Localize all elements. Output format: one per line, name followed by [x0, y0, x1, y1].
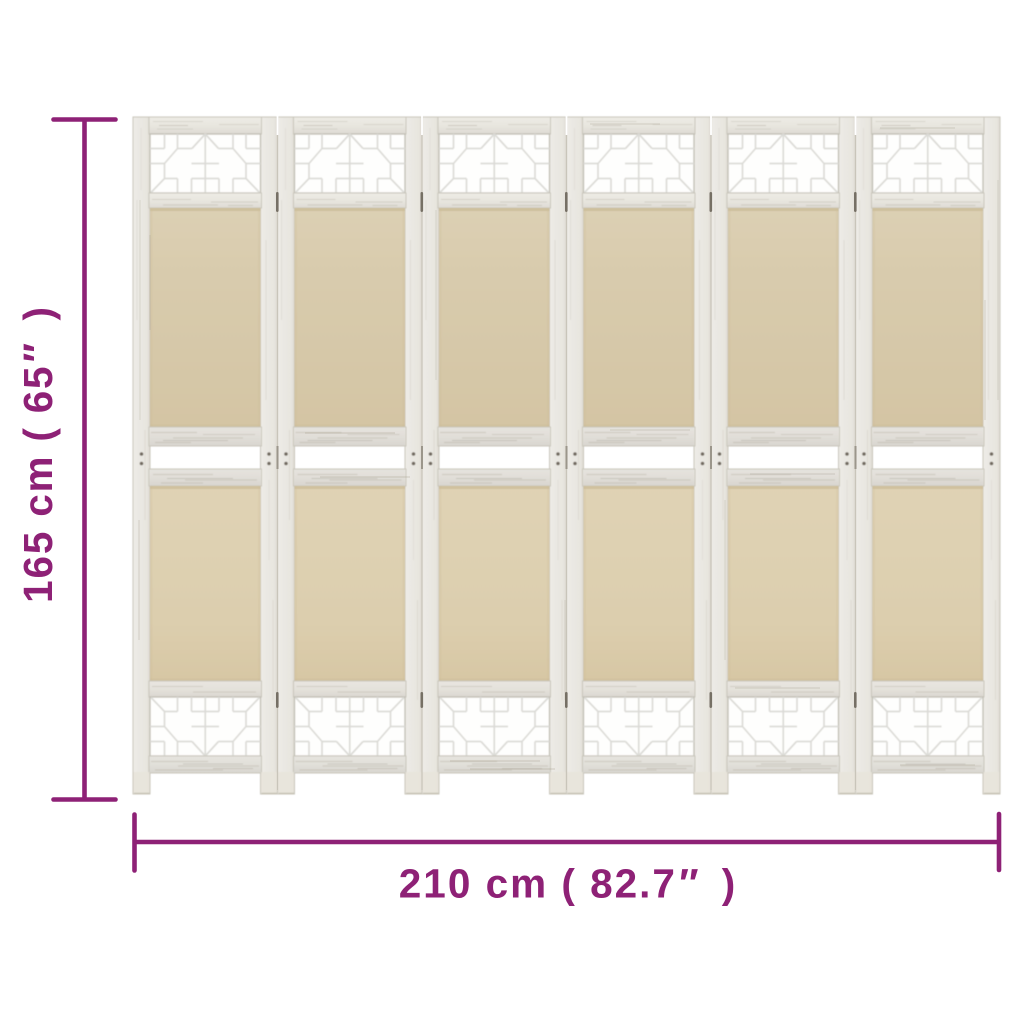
svg-text:210 cm ( 82.7″ ): 210 cm ( 82.7″ ): [399, 861, 737, 907]
svg-text:165 cm ( 65″ ): 165 cm ( 65″ ): [15, 305, 61, 603]
